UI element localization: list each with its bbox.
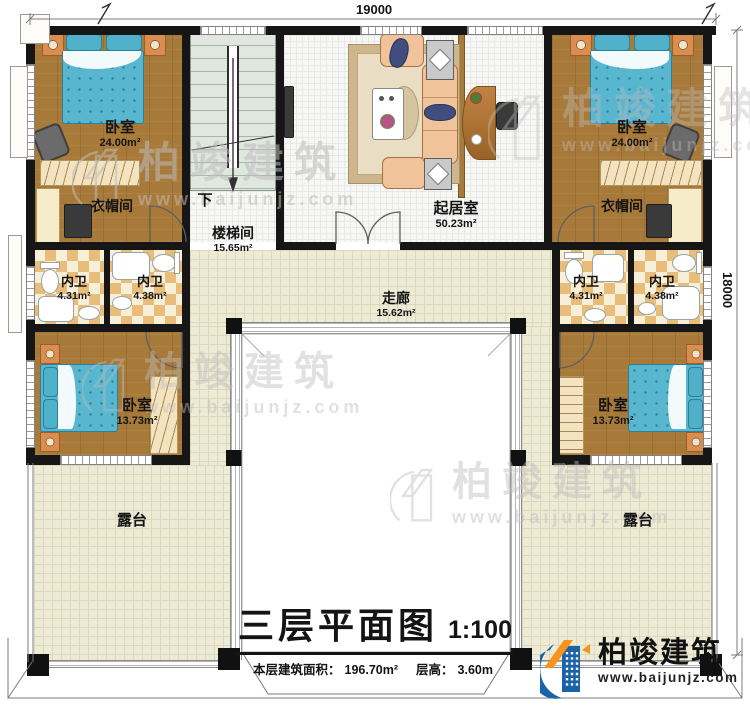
room-name: 衣帽间 xyxy=(91,198,133,215)
room-area: 15.62m² xyxy=(376,307,415,320)
window xyxy=(200,26,266,35)
room-label-bedroom-mid-left: 卧室 13.73m² xyxy=(117,397,158,428)
room-label-corridor: 走廊 15.62m² xyxy=(376,290,415,319)
room-name: 楼梯间 xyxy=(212,225,254,242)
window xyxy=(467,26,543,35)
clothes-rack xyxy=(600,160,702,186)
room-area: 15.65m² xyxy=(212,242,254,255)
nightstand xyxy=(672,34,694,56)
sink xyxy=(638,302,656,315)
room-name: 卧室 xyxy=(117,397,158,415)
flower-vase xyxy=(380,114,395,129)
wall xyxy=(544,26,552,250)
terrace-right-floor xyxy=(522,465,712,660)
brand-logo-icon xyxy=(540,638,592,700)
floor-area-label: 本层建筑面积： xyxy=(253,663,341,677)
side-table-top xyxy=(429,49,452,72)
room-area: 4.38m² xyxy=(645,290,678,303)
floor-plan-canvas: 19000 18000 柏竣建筑 www.baijunjz.com 柏竣建筑 w… xyxy=(0,0,750,709)
toilet-tank xyxy=(564,252,584,259)
walkway-right-floor xyxy=(522,326,552,465)
column-post xyxy=(510,450,526,466)
room-area: 24.00m² xyxy=(100,137,141,150)
pillow xyxy=(688,367,703,397)
walkway-left-floor xyxy=(190,326,230,465)
wall xyxy=(400,242,544,250)
nightstand xyxy=(570,34,592,56)
room-label-bathroom-right-outer: 内卫 4.38m² xyxy=(645,274,678,302)
plan-subtitle: 本层建筑面积：196.70m²层高：3.60m xyxy=(236,659,514,678)
column-post xyxy=(226,450,242,466)
room-label-closet-right: 衣帽间 xyxy=(601,198,643,215)
window xyxy=(60,455,152,465)
floor-height-label: 层高： xyxy=(416,663,454,677)
wall xyxy=(182,26,190,250)
wardrobe xyxy=(668,188,702,244)
pillow xyxy=(594,34,630,51)
window xyxy=(703,360,712,448)
window xyxy=(703,266,712,320)
wall xyxy=(552,242,712,250)
room-name: 走廊 xyxy=(376,290,415,307)
dimension-top: 19000 xyxy=(356,2,392,17)
exterior-ledge xyxy=(10,66,28,158)
column-post xyxy=(226,318,242,334)
pillow xyxy=(43,399,58,429)
direction-text: 下 xyxy=(197,192,212,210)
room-name: 卧室 xyxy=(593,397,634,415)
toilet xyxy=(672,254,696,272)
desk-plant xyxy=(470,92,482,104)
nightstand xyxy=(40,432,60,452)
nightstand xyxy=(40,344,60,364)
brand-logo: 柏竣建筑 www.baijunjz.com xyxy=(540,638,739,700)
side-table-top xyxy=(427,163,450,186)
shelf-ladder xyxy=(556,376,584,454)
sink xyxy=(112,296,132,310)
room-name: 内卫 xyxy=(645,274,678,290)
north-arrow-icon xyxy=(98,4,714,24)
wall xyxy=(26,324,190,332)
column-post xyxy=(27,654,49,676)
room-name: 起居室 xyxy=(433,200,478,218)
toilet-tank xyxy=(40,262,60,269)
bed-sheet xyxy=(668,365,686,429)
bed-sheet xyxy=(58,365,76,429)
dimension-right: 18000 xyxy=(720,272,735,308)
corridor-floor xyxy=(190,250,552,326)
floor-area-value: 196.70m² xyxy=(345,663,399,677)
pillow xyxy=(66,34,102,51)
toilet xyxy=(41,269,59,294)
wall xyxy=(26,242,190,250)
column-post xyxy=(510,318,526,334)
table-item xyxy=(379,96,384,101)
room-label-bedroom-top-right: 卧室 24.00m² xyxy=(612,119,653,150)
armchair xyxy=(382,157,426,189)
room-area: 50.23m² xyxy=(433,218,478,231)
room-label-terrace-left: 露台 xyxy=(117,512,147,530)
tv-icon xyxy=(284,86,294,138)
room-label-terrace-right: 露台 xyxy=(623,512,653,530)
room-name: 露台 xyxy=(117,512,147,530)
room-label-bathroom-right-inner: 内卫 4.31m² xyxy=(569,274,602,302)
wall xyxy=(284,242,336,250)
window xyxy=(26,360,35,448)
room-name: 卧室 xyxy=(100,119,141,137)
plan-scale: 1:100 xyxy=(448,616,512,644)
clothes-rack xyxy=(40,160,140,186)
stair-direction-label: 下 xyxy=(197,192,212,210)
exterior-ledge xyxy=(714,66,732,158)
room-name: 露台 xyxy=(623,512,653,530)
desk-cup xyxy=(471,134,482,145)
window xyxy=(26,266,35,320)
pillow xyxy=(688,399,703,429)
room-area: 4.31m² xyxy=(569,290,602,303)
room-label-closet-left: 衣帽间 xyxy=(91,198,133,215)
stair-handrail xyxy=(227,46,239,168)
wall xyxy=(276,26,284,250)
sink xyxy=(78,306,100,320)
room-name: 内卫 xyxy=(57,274,90,290)
toilet-tank xyxy=(696,252,702,274)
window xyxy=(360,26,422,35)
plan-title-text: 三层平面图 xyxy=(238,605,438,646)
room-name: 内卫 xyxy=(569,274,602,290)
sink xyxy=(584,308,606,322)
pillow xyxy=(106,34,142,51)
wall xyxy=(182,242,190,465)
pillow xyxy=(43,367,58,397)
pillow xyxy=(634,34,670,51)
brand-name: 柏竣建筑 xyxy=(598,638,739,670)
room-label-bedroom-mid-right: 卧室 13.73m² xyxy=(593,397,634,428)
title-block: 三层平面图1:100 本层建筑面积：196.70m²层高：3.60m xyxy=(236,597,514,678)
room-area: 4.31m² xyxy=(57,290,90,303)
room-name: 卧室 xyxy=(612,119,653,137)
table-item xyxy=(389,96,394,101)
window xyxy=(590,455,682,465)
room-name: 内卫 xyxy=(133,274,166,290)
room-name: 衣帽间 xyxy=(601,198,643,215)
dresser xyxy=(64,204,92,238)
window xyxy=(703,64,712,160)
room-area: 13.73m² xyxy=(117,415,158,428)
room-area: 24.00m² xyxy=(612,137,653,150)
courtyard-railing xyxy=(230,322,522,334)
room-label-bathroom-left-outer: 内卫 4.31m² xyxy=(57,274,90,302)
room-label-bathroom-left-inner: 内卫 4.38m² xyxy=(133,274,166,302)
side-table xyxy=(426,40,454,80)
toilet xyxy=(152,254,176,272)
wall xyxy=(552,324,712,332)
person-figure xyxy=(424,104,456,121)
dresser xyxy=(646,204,672,238)
brand-text: 柏竣建筑 www.baijunjz.com xyxy=(598,638,739,685)
floor-height-value: 3.60m xyxy=(458,663,493,677)
side-table xyxy=(424,158,452,190)
nightstand xyxy=(144,34,166,56)
exterior-ledge xyxy=(8,235,22,333)
terrace-left-floor xyxy=(34,465,230,660)
wall xyxy=(104,250,110,324)
room-label-stairwell: 楼梯间 15.65m² xyxy=(212,225,254,254)
office-chair xyxy=(496,102,518,130)
terrace-railing xyxy=(30,660,230,668)
brand-website: www.baijunjz.com xyxy=(598,670,739,685)
toilet-tank xyxy=(174,252,180,274)
exterior-box xyxy=(20,14,50,44)
plan-title: 三层平面图1:100 xyxy=(236,597,514,655)
room-area: 4.38m² xyxy=(133,290,166,303)
wall xyxy=(552,242,560,465)
room-label-bedroom-top-left: 卧室 24.00m² xyxy=(100,119,141,150)
room-label-living-room: 起居室 50.23m² xyxy=(433,200,478,231)
room-area: 13.73m² xyxy=(593,415,634,428)
wall xyxy=(628,250,634,324)
wardrobe xyxy=(36,188,60,244)
